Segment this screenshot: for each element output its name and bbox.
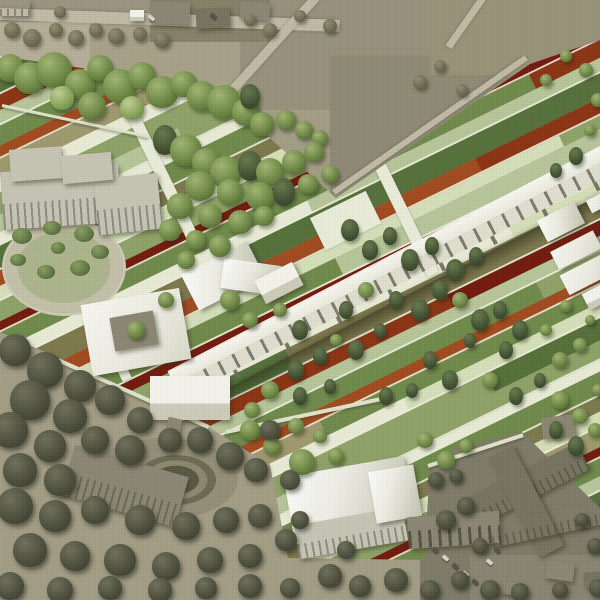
building-small-house-top bbox=[130, 10, 144, 21]
tree bbox=[228, 210, 252, 234]
tree bbox=[358, 282, 374, 298]
tree bbox=[240, 420, 260, 440]
garden-bush bbox=[74, 226, 94, 242]
tree bbox=[291, 511, 309, 529]
tree bbox=[452, 292, 468, 308]
tree bbox=[213, 507, 239, 533]
building-palace-right-wing bbox=[93, 173, 163, 235]
tree bbox=[304, 142, 324, 162]
tree bbox=[469, 247, 483, 265]
tree bbox=[280, 470, 300, 490]
tree bbox=[0, 572, 24, 600]
tree bbox=[60, 541, 90, 571]
tree bbox=[482, 372, 498, 388]
tree bbox=[294, 10, 306, 22]
tree bbox=[587, 538, 600, 554]
tree bbox=[575, 513, 589, 527]
tree bbox=[401, 249, 419, 272]
tree bbox=[4, 22, 20, 38]
garden-bush bbox=[43, 221, 61, 235]
tree bbox=[238, 544, 262, 568]
tree bbox=[0, 488, 33, 524]
tree bbox=[104, 544, 136, 576]
tree bbox=[560, 300, 572, 312]
tree bbox=[337, 541, 355, 559]
tree bbox=[442, 370, 458, 390]
tree bbox=[95, 385, 125, 415]
garden-bush bbox=[70, 260, 90, 276]
tree bbox=[282, 150, 306, 174]
tree bbox=[493, 301, 507, 319]
tree bbox=[579, 63, 593, 77]
tree bbox=[384, 568, 408, 592]
tree bbox=[78, 92, 106, 120]
tree bbox=[50, 86, 74, 110]
tree bbox=[68, 30, 84, 46]
tree bbox=[328, 448, 344, 464]
tree bbox=[152, 552, 180, 580]
tree bbox=[53, 399, 87, 433]
tree bbox=[260, 420, 280, 440]
tree bbox=[446, 259, 464, 282]
tree bbox=[560, 50, 572, 62]
tree bbox=[464, 333, 476, 348]
tree bbox=[568, 436, 584, 456]
tree bbox=[275, 529, 297, 551]
tree bbox=[459, 439, 473, 453]
tree bbox=[480, 580, 500, 600]
tree bbox=[432, 280, 448, 300]
tree bbox=[549, 421, 563, 439]
tree bbox=[293, 387, 307, 405]
tree bbox=[413, 75, 427, 89]
tree bbox=[81, 426, 109, 454]
tree bbox=[509, 387, 523, 405]
tree bbox=[449, 469, 463, 483]
tree bbox=[411, 299, 429, 322]
tree bbox=[389, 291, 403, 309]
tree bbox=[263, 23, 277, 37]
tree bbox=[423, 351, 437, 369]
tree bbox=[49, 23, 63, 37]
tree bbox=[3, 453, 37, 487]
building-museum-wing bbox=[368, 464, 422, 523]
building-gallery-terminus bbox=[150, 376, 230, 420]
tree bbox=[34, 430, 66, 462]
tree bbox=[313, 429, 327, 443]
tree bbox=[0, 334, 31, 366]
building-corner-building bbox=[0, 0, 30, 16]
tree bbox=[511, 583, 529, 600]
tree bbox=[451, 571, 469, 589]
tree bbox=[288, 360, 304, 380]
tree bbox=[273, 178, 295, 206]
tree bbox=[81, 496, 109, 524]
building-village-house-a bbox=[149, 1, 190, 25]
tree bbox=[159, 219, 181, 241]
tree bbox=[197, 547, 223, 573]
garden-bush bbox=[91, 245, 109, 259]
tree bbox=[209, 235, 231, 257]
tree bbox=[23, 29, 41, 47]
tree bbox=[115, 435, 145, 465]
tree bbox=[220, 290, 240, 310]
garden-bush bbox=[12, 228, 32, 244]
tree bbox=[456, 84, 468, 96]
tree bbox=[89, 23, 103, 37]
tree bbox=[406, 383, 418, 398]
tree bbox=[47, 577, 73, 600]
tree bbox=[244, 14, 256, 26]
tree bbox=[261, 381, 279, 399]
tree bbox=[318, 564, 342, 588]
tree bbox=[472, 538, 488, 554]
tree bbox=[39, 500, 71, 532]
tree bbox=[457, 497, 475, 515]
tree bbox=[552, 352, 568, 368]
building-suburb-house-b bbox=[545, 560, 575, 582]
tree bbox=[540, 324, 552, 336]
tree bbox=[280, 578, 300, 598]
tree bbox=[499, 341, 513, 359]
tree bbox=[242, 312, 258, 328]
tree bbox=[428, 472, 444, 488]
tree bbox=[330, 334, 342, 346]
tree bbox=[248, 504, 272, 528]
tree bbox=[172, 512, 200, 540]
tree bbox=[383, 227, 397, 245]
tree bbox=[125, 505, 155, 535]
tree bbox=[198, 204, 222, 228]
tree bbox=[379, 387, 393, 405]
building-palace-rear-block bbox=[9, 146, 63, 182]
tree bbox=[425, 237, 439, 255]
tree bbox=[250, 112, 274, 136]
tree bbox=[238, 574, 262, 598]
tree bbox=[186, 230, 206, 250]
aerial-collage-canvas bbox=[0, 0, 600, 600]
tree bbox=[127, 407, 153, 433]
tree bbox=[339, 301, 353, 319]
tree bbox=[592, 384, 600, 396]
tree bbox=[64, 370, 96, 402]
tree bbox=[295, 121, 313, 139]
tree bbox=[108, 28, 124, 44]
tree bbox=[244, 458, 268, 482]
tree bbox=[244, 402, 260, 418]
tree bbox=[54, 6, 66, 18]
tree bbox=[313, 347, 327, 365]
tree bbox=[534, 373, 546, 388]
tree bbox=[120, 96, 144, 120]
tree bbox=[540, 74, 552, 86]
tree bbox=[216, 442, 244, 470]
tree bbox=[471, 309, 489, 332]
tree bbox=[276, 110, 296, 130]
tree bbox=[167, 193, 193, 219]
tree bbox=[434, 60, 446, 72]
garden-bush bbox=[51, 242, 65, 253]
tree bbox=[569, 147, 583, 165]
tree bbox=[217, 179, 243, 205]
tree bbox=[417, 432, 433, 448]
tree bbox=[133, 27, 147, 41]
tree bbox=[187, 427, 213, 453]
tree bbox=[323, 19, 337, 33]
tree bbox=[292, 320, 308, 340]
tree bbox=[512, 320, 528, 340]
tree bbox=[298, 174, 318, 194]
tree bbox=[374, 323, 386, 338]
tree bbox=[362, 240, 378, 260]
tree bbox=[588, 423, 600, 437]
tree bbox=[349, 575, 371, 597]
tree bbox=[321, 165, 339, 183]
tree bbox=[420, 580, 440, 600]
tree bbox=[288, 418, 304, 434]
tree bbox=[436, 510, 456, 530]
tree bbox=[254, 206, 274, 226]
tree bbox=[591, 93, 600, 107]
tree bbox=[154, 32, 170, 48]
tree bbox=[589, 579, 600, 597]
tree bbox=[348, 340, 364, 360]
garden-bush bbox=[37, 265, 55, 279]
tree bbox=[572, 408, 588, 424]
tree bbox=[584, 124, 596, 136]
tree bbox=[552, 582, 568, 598]
tree bbox=[437, 451, 455, 469]
tree bbox=[573, 338, 587, 352]
building-palace-rear-annex bbox=[61, 152, 113, 184]
tree bbox=[324, 379, 336, 394]
tree bbox=[177, 251, 195, 269]
tree bbox=[148, 578, 172, 600]
tree bbox=[551, 391, 569, 409]
tree bbox=[127, 321, 145, 339]
tree bbox=[585, 315, 595, 325]
tree bbox=[273, 303, 287, 317]
tree bbox=[13, 533, 47, 567]
tree bbox=[195, 577, 217, 599]
tree bbox=[158, 428, 182, 452]
tree bbox=[98, 576, 122, 600]
tree bbox=[341, 219, 359, 242]
tree bbox=[44, 464, 76, 496]
tree bbox=[240, 84, 260, 109]
tree bbox=[158, 292, 174, 308]
tree bbox=[550, 163, 562, 178]
